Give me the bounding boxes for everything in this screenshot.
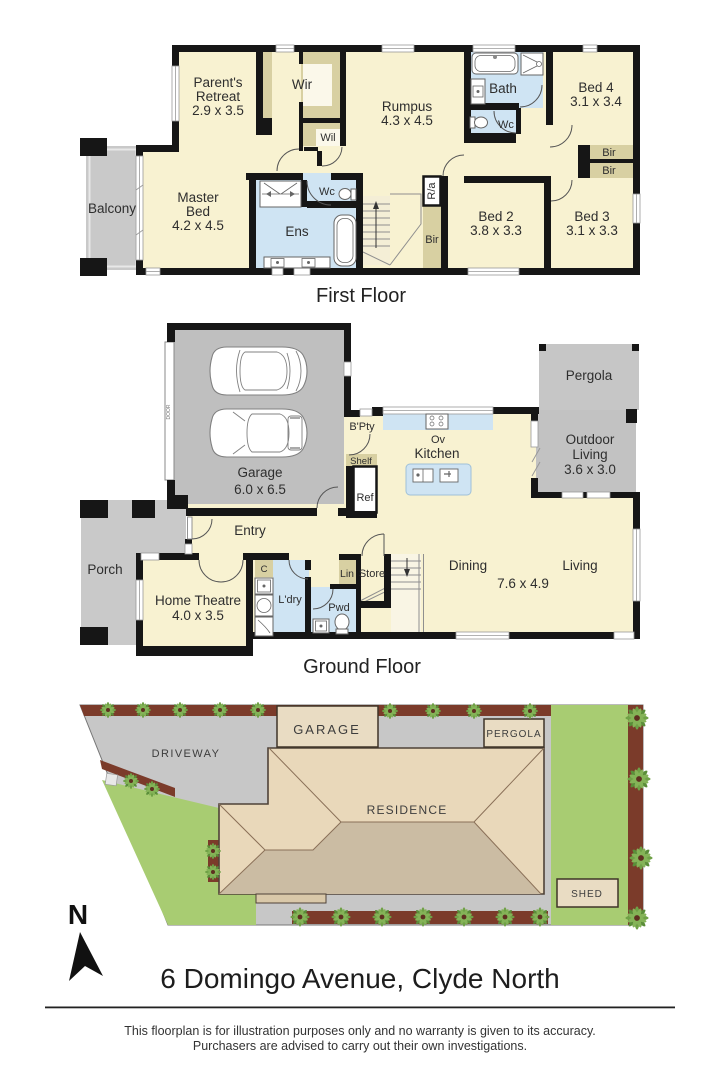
svg-text:Outdoor: Outdoor xyxy=(566,432,615,447)
svg-text:Parent's: Parent's xyxy=(193,75,242,90)
svg-text:Ground Floor: Ground Floor xyxy=(303,656,421,678)
svg-text:Garage: Garage xyxy=(237,465,282,480)
svg-text:L'dry: L'dry xyxy=(278,594,302,606)
svg-text:DRIVEWAY: DRIVEWAY xyxy=(152,748,221,760)
svg-text:Dining: Dining xyxy=(449,558,487,573)
svg-text:Lin: Lin xyxy=(340,568,354,580)
svg-text:Home Theatre: Home Theatre xyxy=(155,593,241,608)
svg-text:Bed 3: Bed 3 xyxy=(574,209,609,224)
svg-text:SHED: SHED xyxy=(571,889,603,900)
svg-text:Living: Living xyxy=(572,447,607,462)
svg-text:Ref: Ref xyxy=(356,492,374,504)
svg-text:3.1 x 3.4: 3.1 x 3.4 xyxy=(570,94,622,109)
svg-text:4.0 x 3.5: 4.0 x 3.5 xyxy=(172,608,224,623)
svg-text:4.3 x 4.5: 4.3 x 4.5 xyxy=(381,113,433,128)
svg-text:Wc: Wc xyxy=(319,186,335,198)
svg-text:N: N xyxy=(68,899,88,930)
svg-text:RESIDENCE: RESIDENCE xyxy=(367,803,448,817)
svg-text:Ov: Ov xyxy=(431,434,446,446)
svg-text:Living: Living xyxy=(562,558,597,573)
svg-text:C: C xyxy=(261,564,268,575)
svg-text:3.1 x 3.3: 3.1 x 3.3 xyxy=(566,223,618,238)
svg-text:6 Domingo Avenue, Clyde North: 6 Domingo Avenue, Clyde North xyxy=(160,963,560,994)
svg-text:3.6 x 3.0: 3.6 x 3.0 xyxy=(564,462,616,477)
svg-text:Kitchen: Kitchen xyxy=(414,446,459,461)
svg-text:Bir: Bir xyxy=(602,147,616,159)
svg-text:GARAGE: GARAGE xyxy=(293,722,361,737)
svg-text:Entry: Entry xyxy=(234,523,266,538)
svg-text:Pergola: Pergola xyxy=(566,368,613,383)
svg-text:First Floor: First Floor xyxy=(316,285,406,307)
svg-text:Pwd: Pwd xyxy=(328,602,349,614)
svg-text:Rumpus: Rumpus xyxy=(382,99,433,114)
svg-text:Store: Store xyxy=(359,568,385,580)
svg-text:6.0 x 6.5: 6.0 x 6.5 xyxy=(234,482,286,497)
svg-text:4.2 x 4.5: 4.2 x 4.5 xyxy=(172,218,224,233)
svg-text:Balcony: Balcony xyxy=(88,201,136,216)
svg-text:DOOR: DOOR xyxy=(166,404,172,419)
svg-text:Wc: Wc xyxy=(498,119,514,131)
svg-text:Bir: Bir xyxy=(602,165,616,177)
svg-text:Retreat: Retreat xyxy=(196,89,241,104)
svg-text:Bath: Bath xyxy=(489,81,517,96)
svg-text:Master: Master xyxy=(177,190,219,205)
svg-text:Bed 2: Bed 2 xyxy=(478,209,513,224)
svg-text:Shelf: Shelf xyxy=(350,456,372,467)
svg-text:Bir: Bir xyxy=(425,234,439,246)
svg-text:Wir: Wir xyxy=(292,77,313,92)
svg-text:7.6 x 4.9: 7.6 x 4.9 xyxy=(497,576,549,591)
svg-text:B'Pty: B'Pty xyxy=(349,421,375,433)
svg-text:R/a: R/a xyxy=(426,182,438,200)
svg-text:Bed: Bed xyxy=(186,204,210,219)
svg-text:Ens: Ens xyxy=(285,224,309,239)
svg-text:Purchasers are advised to carr: Purchasers are advised to carry out thei… xyxy=(193,1039,527,1053)
svg-text:This floorplan is for illustra: This floorplan is for illustration purpo… xyxy=(124,1024,596,1038)
svg-text:PERGOLA: PERGOLA xyxy=(486,729,541,740)
svg-text:Porch: Porch xyxy=(87,562,122,577)
svg-text:Wil: Wil xyxy=(320,132,335,144)
svg-text:3.8 x 3.3: 3.8 x 3.3 xyxy=(470,223,522,238)
svg-text:Bed 4: Bed 4 xyxy=(578,80,614,95)
svg-text:2.9 x 3.5: 2.9 x 3.5 xyxy=(192,103,244,118)
